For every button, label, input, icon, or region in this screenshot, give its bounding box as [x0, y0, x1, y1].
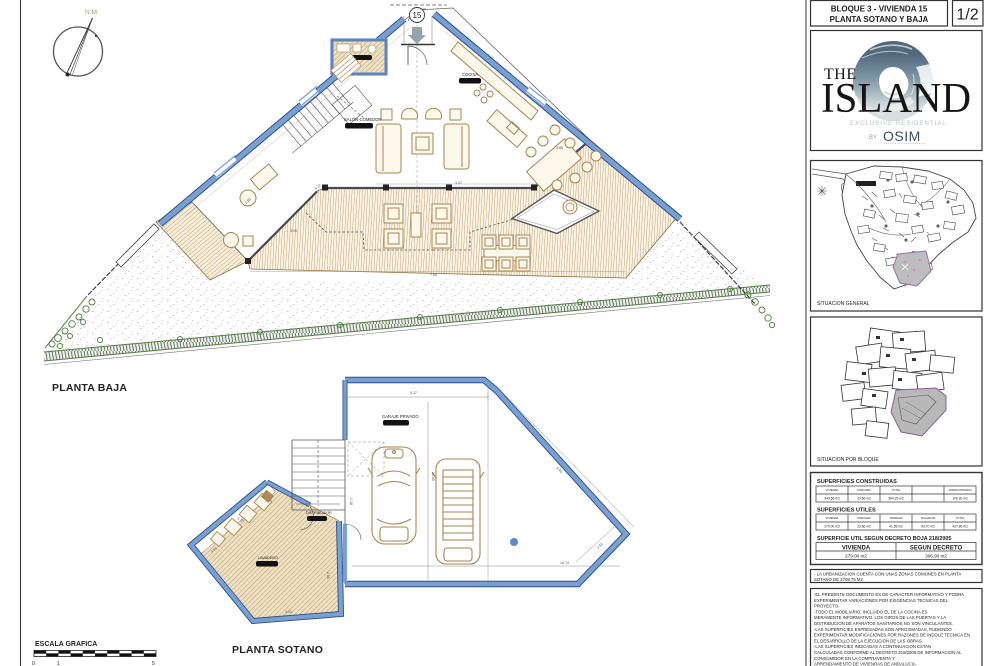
svg-text:LAVADERO: LAVADERO: [258, 556, 278, 560]
svg-text:93.70 m2: 93.70 m2: [921, 525, 935, 529]
svg-text:10.00: 10.00: [431, 472, 435, 481]
svg-text:DISTRIBUCION DE APARATOS SANIT: DISTRIBUCION DE APARATOS SANITARIOS NO S…: [814, 621, 953, 626]
svg-text:VIVIENDA: VIVIENDA: [842, 546, 871, 552]
svg-text:23.66 m2: 23.66 m2: [857, 525, 871, 529]
svg-text:VIVIENDA: VIVIENDA: [825, 516, 838, 520]
svg-text:EL DESARROLLO DE LA EJECUCION: EL DESARROLLO DE LA EJECUCION DE LAS OBR…: [814, 638, 923, 643]
svg-text:-LAS SUPERFICIES EXPRESADAS SO: -LAS SUPERFICIES EXPRESADAS SON APROXIMA…: [814, 627, 952, 632]
svg-text:- LA URBANIZACION CUENTA CON U: - LA URBANIZACION CUENTA CON UNAS ZONAS …: [814, 572, 962, 577]
svg-text:JARDIN PRIVADO: JARDIN PRIVADO: [948, 488, 972, 492]
svg-text:OSIM: OSIM: [883, 128, 921, 144]
svg-text:BY: BY: [869, 135, 877, 141]
svg-text:23.66 m2: 23.66 m2: [857, 497, 871, 501]
svg-text:1: 1: [57, 661, 60, 666]
svg-text:7.06: 7.06: [430, 273, 437, 277]
svg-text:ARRENDAMIENTO DE VIVIENDAS DE: ARRENDAMIENTO DE VIVIENDAS DE ANDALUCIA.: [814, 662, 917, 666]
svg-text:41.58 m2: 41.58 m2: [889, 525, 903, 529]
svg-text:GARAJE PRIVADO: GARAJE PRIVADO: [382, 414, 419, 419]
svg-text:PLANTA SOTANO: PLANTA SOTANO: [232, 644, 323, 656]
svg-text:N.M.: N.M.: [85, 9, 99, 16]
svg-text:SALÓN-COMEDOR: SALÓN-COMEDOR: [344, 117, 381, 122]
svg-text:MERAMENTE INFORMATIVO. LOS GIR: MERAMENTE INFORMATIVO. LOS GIROS DE LAS …: [814, 615, 946, 620]
svg-text:437.86 m2: 437.86 m2: [952, 525, 968, 529]
svg-text:364.25 m2: 364.25 m2: [888, 497, 904, 501]
svg-text:PLANTA SOTANO Y BAJA: PLANTA SOTANO Y BAJA: [830, 15, 929, 24]
svg-text:BLOQUE 3 - VIVIENDA 15: BLOQUE 3 - VIVIENDA 15: [831, 5, 928, 14]
svg-text:3.07: 3.07: [455, 181, 462, 185]
svg-text:2.18: 2.18: [349, 498, 353, 505]
svg-text:PORCHES: PORCHES: [857, 488, 871, 492]
svg-text:VIVIENDA: VIVIENDA: [825, 488, 838, 492]
svg-text:EXPERIMENTAR VARIACIONES POR E: EXPERIMENTAR VARIACIONES POR EXIGENCIAS …: [814, 598, 949, 603]
svg-text:106.30 m2: 106.30 m2: [952, 497, 968, 501]
svg-text:5: 5: [152, 661, 155, 666]
svg-text:15: 15: [413, 11, 422, 20]
svg-text:SUPERFICIES CONSTRUIDAS: SUPERFICIES CONSTRUIDAS: [817, 479, 897, 485]
svg-text:SOTANO DE 3708.75 M2.: SOTANO DE 3708.75 M2.: [814, 577, 864, 582]
svg-text:SITUACION POR BLOQUE: SITUACION POR BLOQUE: [817, 457, 879, 463]
svg-text:343.66 m2: 343.66 m2: [824, 497, 840, 501]
svg-text:TERRAZA: TERRAZA: [889, 516, 902, 520]
svg-text:PORCHES: PORCHES: [857, 516, 871, 520]
svg-text:SUPERFICIES UTILES: SUPERFICIES UTILES: [817, 508, 876, 514]
svg-text:PROYECTO.: PROYECTO.: [814, 604, 839, 609]
svg-text:306.90 m2: 306.90 m2: [925, 554, 947, 559]
svg-text:CONSUMIDOR EN LA COMPRAVENTA Y: CONSUMIDOR EN LA COMPRAVENTA Y: [814, 656, 895, 661]
svg-text:279.00 m2: 279.00 m2: [845, 554, 867, 559]
svg-text:5.37: 5.37: [410, 391, 417, 395]
svg-text:TOTAL: TOTAL: [956, 516, 965, 520]
svg-text:ESCALA GRAFICA: ESCALA GRAFICA: [35, 641, 97, 648]
svg-text:3.95: 3.95: [290, 229, 297, 233]
svg-text:-LAS SUPERFICIES INDICADAS A C: -LAS SUPERFICIES INDICADAS A CONTINUACIO…: [814, 644, 931, 649]
svg-text:SITUACION GENERAL: SITUACION GENERAL: [817, 301, 870, 307]
svg-text:EXPERIMENTAR MODIFICACIONES PO: EXPERIMENTAR MODIFICACIONES POR RAZONES …: [814, 633, 970, 638]
svg-text:10.74: 10.74: [560, 561, 569, 565]
svg-text:3.85: 3.85: [556, 146, 563, 150]
svg-text:1/2: 1/2: [956, 7, 978, 24]
svg-text:0: 0: [32, 661, 35, 666]
svg-text:-EL PRESENTE DOCUMENTO ES DE C: -EL PRESENTE DOCUMENTO ES DE CARACTER IN…: [814, 592, 964, 597]
svg-text:EXCLUSIVE RESIDENTIAL: EXCLUSIVE RESIDENTIAL: [850, 121, 947, 127]
svg-text:TOTAL: TOTAL: [892, 488, 901, 492]
svg-text:CALCULADAS CONFORME AL DECRETO: CALCULADAS CONFORME AL DECRETO 218/2005 …: [814, 650, 962, 655]
svg-text:SEGUN DECRETO: SEGUN DECRETO: [910, 546, 963, 552]
svg-text:-TODO EL MOBILIARIO, INCLUIDO: -TODO EL MOBILIARIO, INCLUIDO EL DE LA C…: [814, 609, 928, 614]
svg-text:2.88: 2.88: [326, 572, 330, 579]
svg-text:ISLAND: ISLAND: [821, 76, 971, 122]
svg-text:COCINA: COCINA: [462, 72, 478, 77]
svg-text:PLANTA BAJA: PLANTA BAJA: [52, 382, 127, 394]
svg-text:SOLARIUM: SOLARIUM: [921, 516, 936, 520]
svg-text:3.43: 3.43: [285, 610, 292, 614]
svg-text:SUPERFICIE UTIL SEGUN DECRETO: SUPERFICIE UTIL SEGUN DECRETO BOJA 218/2…: [817, 536, 951, 542]
svg-text:DISTRIBUIDOR: DISTRIBUIDOR: [306, 511, 332, 515]
svg-text:279.00 m2: 279.00 m2: [824, 525, 840, 529]
